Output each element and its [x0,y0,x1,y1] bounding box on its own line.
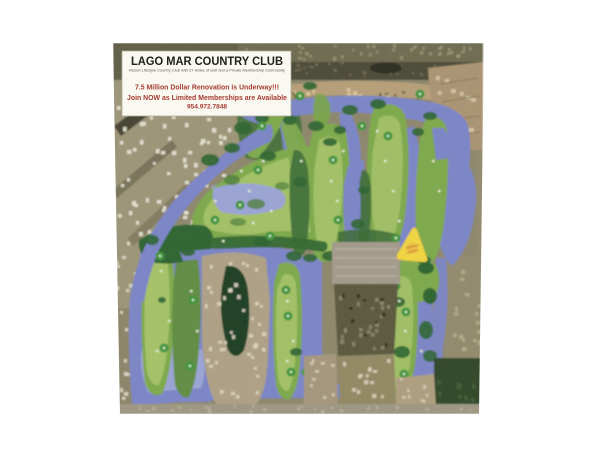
svg-text:954.972.7848: 954.972.7848 [187,104,228,111]
svg-text:Join NOW as Limited Membership: Join NOW as Limited Memberships are Avai… [127,95,287,102]
svg-text:7.5 Million Dollar Renovation: 7.5 Million Dollar Renovation is Underwa… [135,85,279,92]
svg-text:Resort Lifestyle Country Club: Resort Lifestyle Country Club with 27 Ho… [129,69,285,73]
svg-text:LAGO MAR COUNTRY CLUB: LAGO MAR COUNTRY CLUB [131,56,283,68]
